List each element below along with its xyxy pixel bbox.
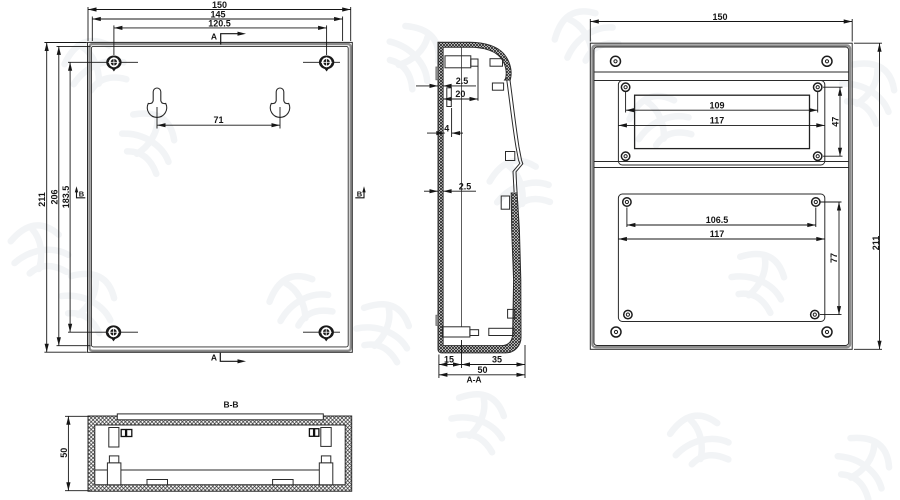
svg-text:211: 211 <box>871 236 881 251</box>
svg-text:A-A: A-A <box>466 375 481 385</box>
svg-text:71: 71 <box>213 115 223 125</box>
svg-text:150: 150 <box>712 12 727 22</box>
svg-text:50: 50 <box>477 365 487 375</box>
svg-text:2.5: 2.5 <box>456 76 469 86</box>
svg-text:B-B: B-B <box>223 400 238 410</box>
svg-text:A: A <box>211 353 217 363</box>
svg-text:109: 109 <box>709 100 724 110</box>
svg-text:47: 47 <box>831 117 841 127</box>
svg-text:106.5: 106.5 <box>706 215 729 225</box>
svg-text:4: 4 <box>444 123 449 133</box>
svg-text:120.5: 120.5 <box>208 18 231 28</box>
svg-text:117: 117 <box>710 229 725 239</box>
svg-text:B: B <box>79 190 85 199</box>
svg-text:2.5: 2.5 <box>459 181 472 191</box>
svg-text:A: A <box>211 32 217 42</box>
svg-text:77: 77 <box>829 253 839 263</box>
svg-text:50: 50 <box>59 448 69 458</box>
svg-text:15: 15 <box>444 355 454 365</box>
svg-text:183.5: 183.5 <box>61 186 71 209</box>
svg-text:B: B <box>357 190 363 199</box>
svg-text:20: 20 <box>455 89 465 99</box>
svg-text:211: 211 <box>37 192 47 207</box>
svg-text:35: 35 <box>492 355 502 365</box>
svg-text:117: 117 <box>710 116 725 126</box>
svg-text:206: 206 <box>49 189 59 204</box>
